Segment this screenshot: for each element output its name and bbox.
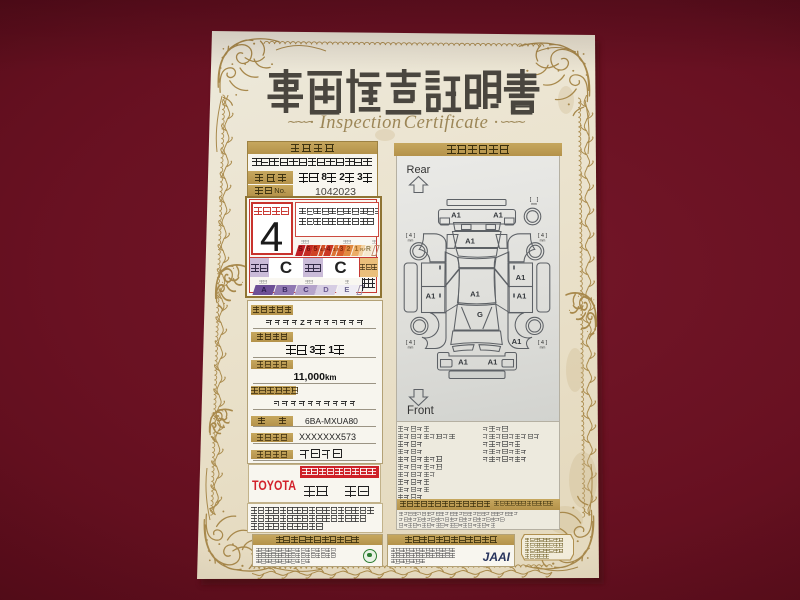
svg-text:A1: A1 (426, 292, 436, 301)
svg-text:G: G (477, 310, 483, 319)
svg-text:mm: mm (540, 239, 546, 243)
svg-text:A1: A1 (451, 211, 461, 220)
svg-text:mm: mm (531, 202, 537, 206)
svg-text:A1: A1 (488, 358, 498, 367)
svg-text:A1: A1 (493, 211, 503, 220)
svg-text:A1: A1 (458, 358, 468, 367)
svg-text:mm: mm (540, 346, 546, 350)
svg-text:A1: A1 (512, 337, 522, 346)
svg-text:mm: mm (408, 239, 414, 243)
svg-text:A1: A1 (517, 292, 527, 301)
svg-text:A1: A1 (516, 273, 526, 282)
svg-text:mm: mm (408, 346, 414, 350)
svg-text:A1: A1 (465, 237, 475, 246)
svg-text:A1: A1 (470, 290, 480, 299)
